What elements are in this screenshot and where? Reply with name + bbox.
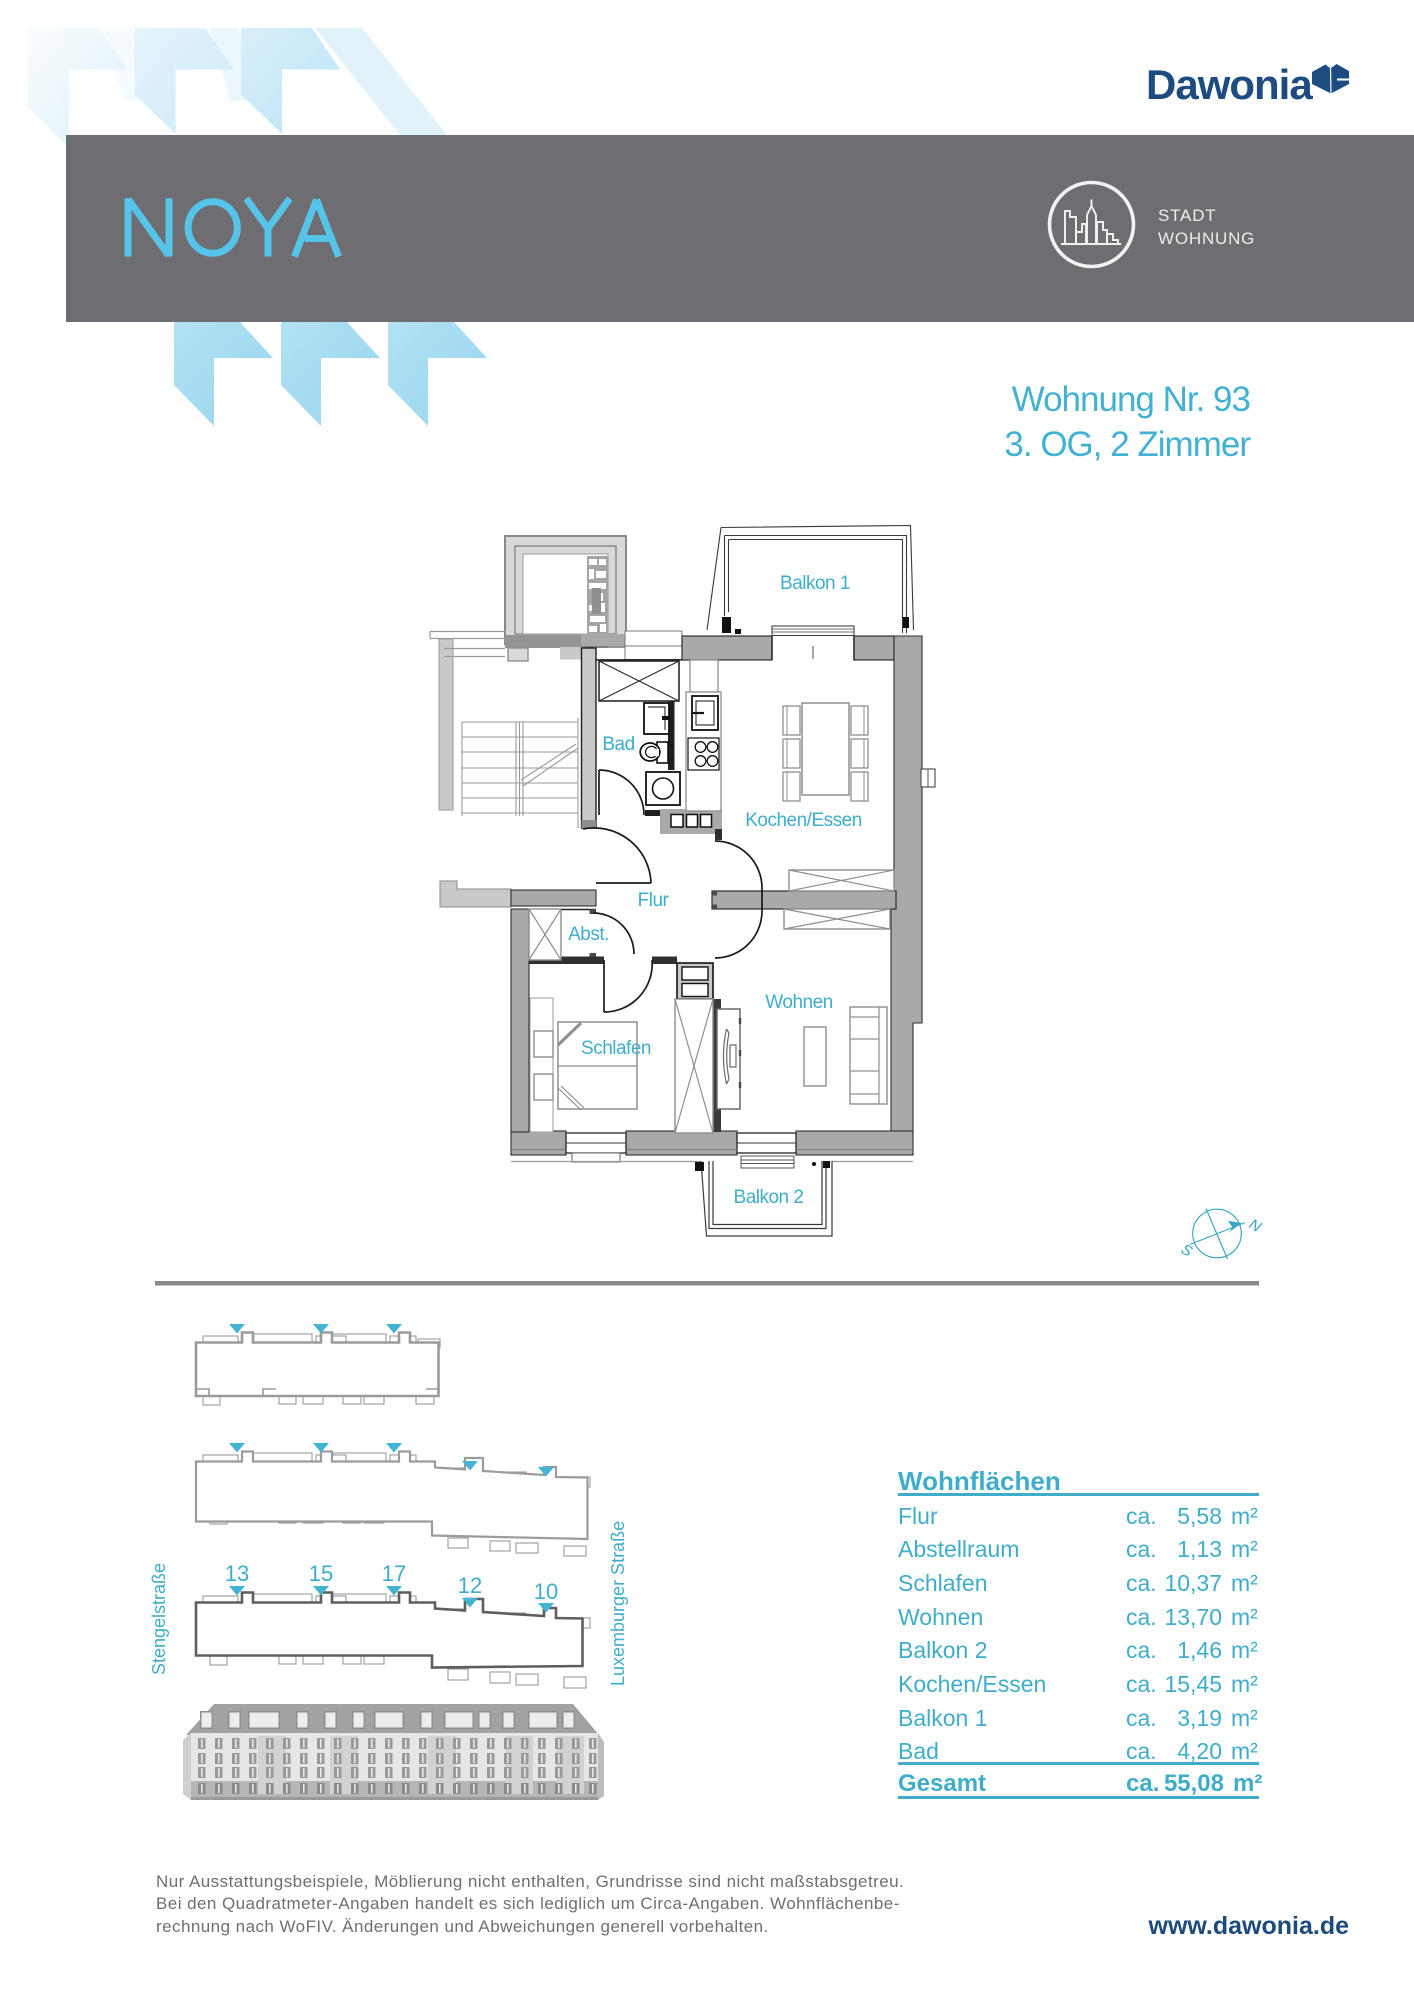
svg-text:12: 12 bbox=[458, 1573, 482, 1598]
svg-text:Stengelstraße: Stengelstraße bbox=[149, 1563, 169, 1675]
svg-text:Wohnen: Wohnen bbox=[765, 992, 832, 1013]
svg-text:10: 10 bbox=[534, 1579, 558, 1604]
svg-text:15: 15 bbox=[309, 1561, 333, 1586]
svg-text:Bad: Bad bbox=[602, 734, 634, 755]
svg-text:Balkon 2: Balkon 2 bbox=[734, 1187, 804, 1208]
svg-text:13: 13 bbox=[225, 1561, 249, 1586]
svg-text:Kochen/Essen: Kochen/Essen bbox=[745, 810, 862, 831]
svg-text:Luxemburger Straße: Luxemburger Straße bbox=[608, 1521, 628, 1686]
svg-text:Flur: Flur bbox=[638, 890, 670, 911]
svg-text:Balkon 1: Balkon 1 bbox=[780, 573, 850, 594]
svg-text:Abst.: Abst. bbox=[568, 924, 609, 945]
svg-text:17: 17 bbox=[382, 1561, 406, 1586]
svg-text:N: N bbox=[1246, 1216, 1264, 1236]
svg-text:S: S bbox=[1178, 1241, 1195, 1261]
svg-text:Schlafen: Schlafen bbox=[581, 1038, 651, 1059]
